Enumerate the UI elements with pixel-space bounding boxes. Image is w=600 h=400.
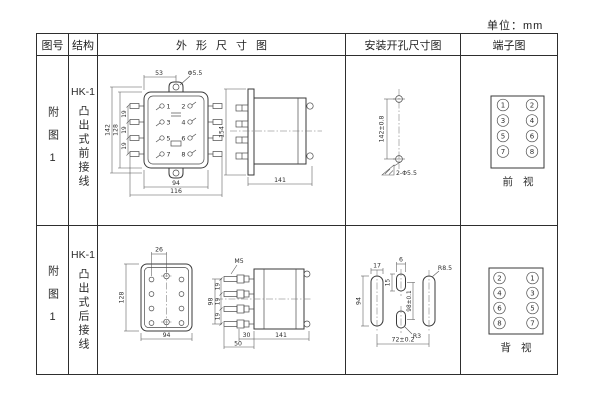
dim-142: 142 [105, 124, 112, 136]
row1-structure-desc: 凸出式前接线 [75, 105, 91, 189]
terminal-4: 4 [181, 119, 185, 127]
dim-72-tol: 72±0.2 [392, 337, 415, 344]
dim-30: 30 [243, 332, 251, 339]
dim-15: 15 [386, 279, 392, 287]
back-view-terminal-diagram: 2 1 4 3 6 5 8 7 背视 [461, 226, 558, 375]
dim-19a: 19 [122, 110, 128, 118]
relay-front-view: 1 2 3 4 5 6 7 8 [105, 70, 223, 197]
dim-94-slot: 94 [356, 297, 363, 305]
dim-m5: M5 [234, 258, 243, 265]
row1-figure-no: 附图1 [37, 56, 69, 226]
dim-2-holes: 2-Φ5.5 [396, 170, 417, 177]
dim-19f: 19 [216, 313, 222, 321]
front-view-terminal-diagram: 1 2 3 4 5 6 7 8 前视 [461, 56, 558, 226]
rear-side-dim-lines [212, 265, 309, 349]
side-dim-lines [224, 89, 312, 186]
back-terminal-7: 7 [530, 320, 534, 328]
terminal-8: 8 [181, 151, 185, 159]
terminal-3: 3 [166, 119, 170, 127]
terminal-5: 5 [166, 135, 170, 143]
dim-98-tol: 98±0.1 [407, 290, 413, 312]
dim-53: 53 [155, 70, 163, 77]
dim-19d: 19 [216, 283, 222, 291]
dim-154: 154 [219, 126, 226, 138]
unit-label: 单位：mm [487, 17, 543, 33]
relay-rear-side-view: M5 98 19 19 19 30 50 141 [208, 258, 313, 349]
dim-94-rear: 94 [163, 332, 171, 339]
terminal-screws [156, 102, 196, 158]
front-wiring-outline-drawing: 1 2 3 4 5 6 7 8 [98, 56, 346, 226]
dim-94: 94 [172, 180, 180, 187]
back-view-label: 背视 [501, 341, 542, 354]
front-terminal-4: 4 [530, 117, 535, 125]
back-terminal-1: 1 [530, 275, 534, 283]
row2-mounting-cell: 17 94 6 15 98±0.1 R8.5 R3 72±0.2 [346, 226, 461, 375]
row1-mounting-cell: 142±0.8 2-Φ5.5 [346, 56, 461, 226]
dim-hole-front: Φ5.5 [188, 70, 203, 77]
front-terminal-2: 2 [530, 102, 534, 110]
front-wiring-mounting-drawing: 142±0.8 2-Φ5.5 [346, 56, 461, 226]
front-terminal-5: 5 [501, 133, 505, 141]
header-outline: 外形尺寸图 [98, 34, 346, 56]
dim-19c: 19 [122, 142, 128, 150]
front-terminal-7: 7 [501, 148, 505, 156]
row2-model: HK-1 [71, 249, 95, 261]
dim-50: 50 [234, 341, 242, 348]
header-structure: 结构 [69, 34, 98, 56]
row2-terminal-cell: 2 1 4 3 6 5 8 7 背视 [461, 226, 558, 375]
dim-r85: R8.5 [438, 265, 452, 272]
dimension-table: 图号 结构 外形尺寸图 安装开孔尺寸图 端子图 附图1 HK-1 凸出式前接线 [36, 33, 558, 375]
front-terminal-3: 3 [501, 117, 505, 125]
header-terminal: 端子图 [461, 34, 558, 56]
terminal-6: 6 [181, 135, 185, 143]
row2-structure-desc: 凸出式后接线 [75, 268, 91, 352]
front-terminal-8: 8 [530, 148, 534, 156]
relay-rear-view: 26 128 94 [119, 247, 193, 342]
slot-dim-lines [361, 262, 439, 347]
front-terminal-6: 6 [530, 133, 535, 141]
dim-128-rear: 128 [119, 292, 126, 304]
row1-model: HK-1 [71, 86, 95, 98]
rear-wiring-mounting-drawing: 17 94 6 15 98±0.1 R8.5 R3 72±0.2 [346, 226, 461, 375]
dim-6: 6 [399, 257, 403, 264]
back-terminal-6: 6 [497, 305, 502, 313]
terminal-7: 7 [166, 151, 170, 159]
dim-141: 141 [274, 177, 286, 184]
row1-outline-cell: 1 2 3 4 5 6 7 8 [98, 56, 346, 226]
terminal-studs [224, 275, 254, 328]
datasheet-page: 单位：mm 图号 结构 外形尺寸图 安装开孔尺寸图 端子图 附图1 HK-1 凸… [0, 0, 600, 400]
terminal-1: 1 [166, 103, 170, 111]
back-terminal-5: 5 [530, 305, 534, 313]
front-view-label: 前视 [503, 175, 544, 188]
row1-structure: HK-1 凸出式前接线 [69, 56, 98, 226]
dim-98: 98 [208, 298, 215, 306]
header-figure-no: 图号 [37, 34, 69, 56]
dim-19e: 19 [216, 298, 222, 306]
row2-figure-no: 附图1 [37, 226, 69, 375]
dim-26: 26 [155, 247, 163, 254]
row2-structure: HK-1 凸出式后接线 [69, 226, 98, 375]
dim-142-tol: 142±0.8 [379, 116, 386, 143]
dim-141-rear: 141 [275, 332, 287, 339]
dim-19b: 19 [122, 126, 128, 134]
relay-side-view: 154 141 [219, 89, 323, 186]
back-terminal-2: 2 [497, 275, 501, 283]
side-view-pins [236, 105, 248, 159]
header-mounting: 安装开孔尺寸图 [346, 34, 461, 56]
back-terminal-8: 8 [497, 320, 501, 328]
back-terminal-4: 4 [497, 290, 502, 298]
terminal-2: 2 [181, 103, 185, 111]
front-terminal-1: 1 [501, 102, 505, 110]
back-terminal-3: 3 [530, 290, 534, 298]
row2-outline-cell: 26 128 94 [98, 226, 346, 375]
row1-terminal-cell: 1 2 3 4 5 6 7 8 前视 [461, 56, 558, 226]
rear-wiring-outline-drawing: 26 128 94 [98, 226, 346, 375]
dim-17: 17 [373, 263, 381, 270]
dim-128: 128 [113, 124, 120, 136]
dim-116: 116 [170, 188, 182, 195]
